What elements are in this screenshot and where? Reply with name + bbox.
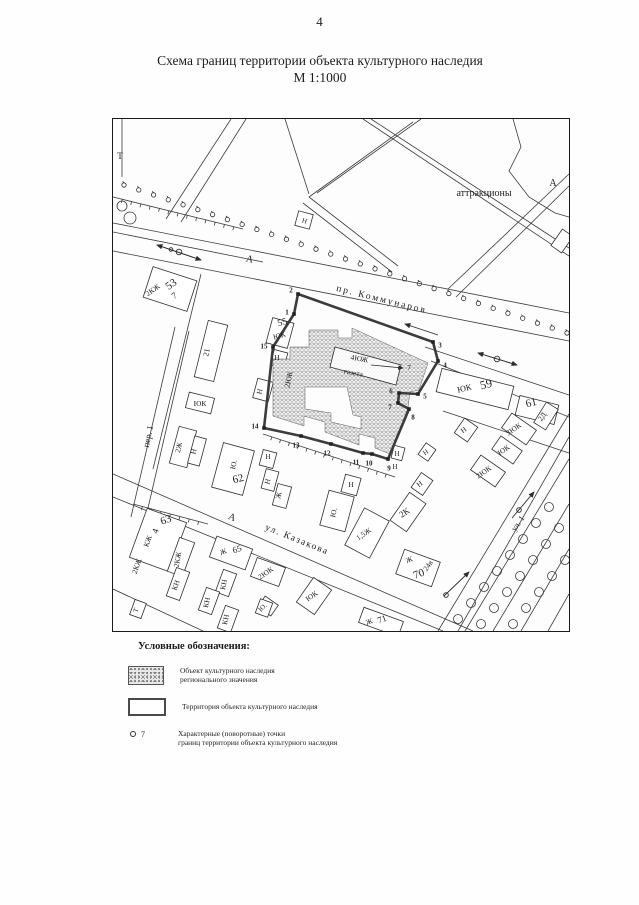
boundary-point-number: 12 <box>324 450 332 458</box>
map-label: Н <box>392 463 397 471</box>
boundary-point-number: 13 <box>293 442 301 450</box>
page-title: Схема границ территории объекта культурн… <box>60 52 580 86</box>
legend-item-label: Объект культурного наследия региональног… <box>180 666 275 685</box>
page-number: 4 <box>0 14 639 30</box>
legend-item-territory: Территория объекта культурного наследия <box>128 698 458 716</box>
title-line1: Схема границ территории объекта культурн… <box>60 52 580 69</box>
legend-heading: Условные обозначения: <box>138 642 458 652</box>
boundary-point-marker <box>431 340 435 344</box>
boundary-point-marker <box>416 392 420 396</box>
boundary-point-marker <box>386 457 390 461</box>
map-label: Н <box>348 480 354 489</box>
boundary-point-number: 1 <box>285 309 289 317</box>
hatched-swatch <box>128 666 164 685</box>
boundary-map: ТаттракционыААпр. Коммунаров532КЖ721ЮК55… <box>113 119 569 631</box>
document-page: 4 Схема границ территории объекта культу… <box>0 0 639 905</box>
map-label: А <box>549 178 557 189</box>
map-label: аттракционы <box>456 188 511 199</box>
boundary-point-marker <box>292 312 296 316</box>
boundary-point-number: 4 <box>443 362 447 370</box>
boundary-point-number: 11 <box>353 459 360 467</box>
boundary-point-number: 8 <box>411 414 415 422</box>
title-line2: М 1:1000 <box>60 69 580 86</box>
map-label: А <box>227 511 238 524</box>
map-label: Н <box>265 452 271 461</box>
map-label: 59 <box>479 376 494 392</box>
legend: Условные обозначения: Объект культурного… <box>128 642 458 761</box>
legend-item-label: Территория объекта культурного наследия <box>182 702 318 712</box>
boundary-point-marker <box>329 442 333 446</box>
boundary-point-marker <box>262 426 266 430</box>
turn-point-swatch: 7 <box>128 730 162 747</box>
boundary-point-marker <box>407 407 411 411</box>
legend-item-heritage-object: Объект культурного наследия региональног… <box>128 666 458 685</box>
boundary-point-number: 10 <box>366 460 374 468</box>
boundary-point-number: 9 <box>387 465 391 473</box>
map-label: ЮК <box>194 399 208 408</box>
map-label: пер. 1 <box>141 424 155 448</box>
map-label: Т <box>117 151 123 161</box>
boundary-point-marker <box>299 434 303 438</box>
map-label: ул. Казакова <box>263 523 330 558</box>
boundary-point-marker <box>436 359 440 363</box>
boundary-point-marker <box>271 345 275 349</box>
boundary-point-marker <box>396 401 400 405</box>
boundary-point-number: 5 <box>423 393 427 401</box>
boundary-point-marker <box>296 292 300 296</box>
map-frame: ТаттракционыААпр. Коммунаров532КЖ721ЮК55… <box>112 118 570 632</box>
legend-item-turn-points: 7 Характерные (поворотные) точки границ … <box>128 729 458 748</box>
boundary-point-marker <box>370 452 374 456</box>
point-number: 7 <box>141 730 145 740</box>
boundary-point-number: 15 <box>261 343 269 351</box>
boundary-point-number: 6 <box>389 388 393 396</box>
boundary-point-marker <box>361 451 365 455</box>
boundary-point-number: 7 <box>388 404 392 412</box>
map-label: 7 <box>407 363 411 372</box>
map-label: А <box>245 253 255 265</box>
map-label: 2КЖ <box>130 557 144 575</box>
boundary-point-number: 2 <box>289 287 293 295</box>
legend-item-label: Характерные (поворотные) точки границ те… <box>178 729 337 748</box>
map-label: Н <box>394 450 399 458</box>
boundary-point-marker <box>397 391 401 395</box>
point-circle-icon <box>130 731 136 737</box>
boundary-point-number: 3 <box>438 342 442 350</box>
territory-outline-swatch <box>128 698 166 716</box>
boundary-point-number: 14 <box>252 423 260 431</box>
map-label: Н <box>274 353 280 362</box>
